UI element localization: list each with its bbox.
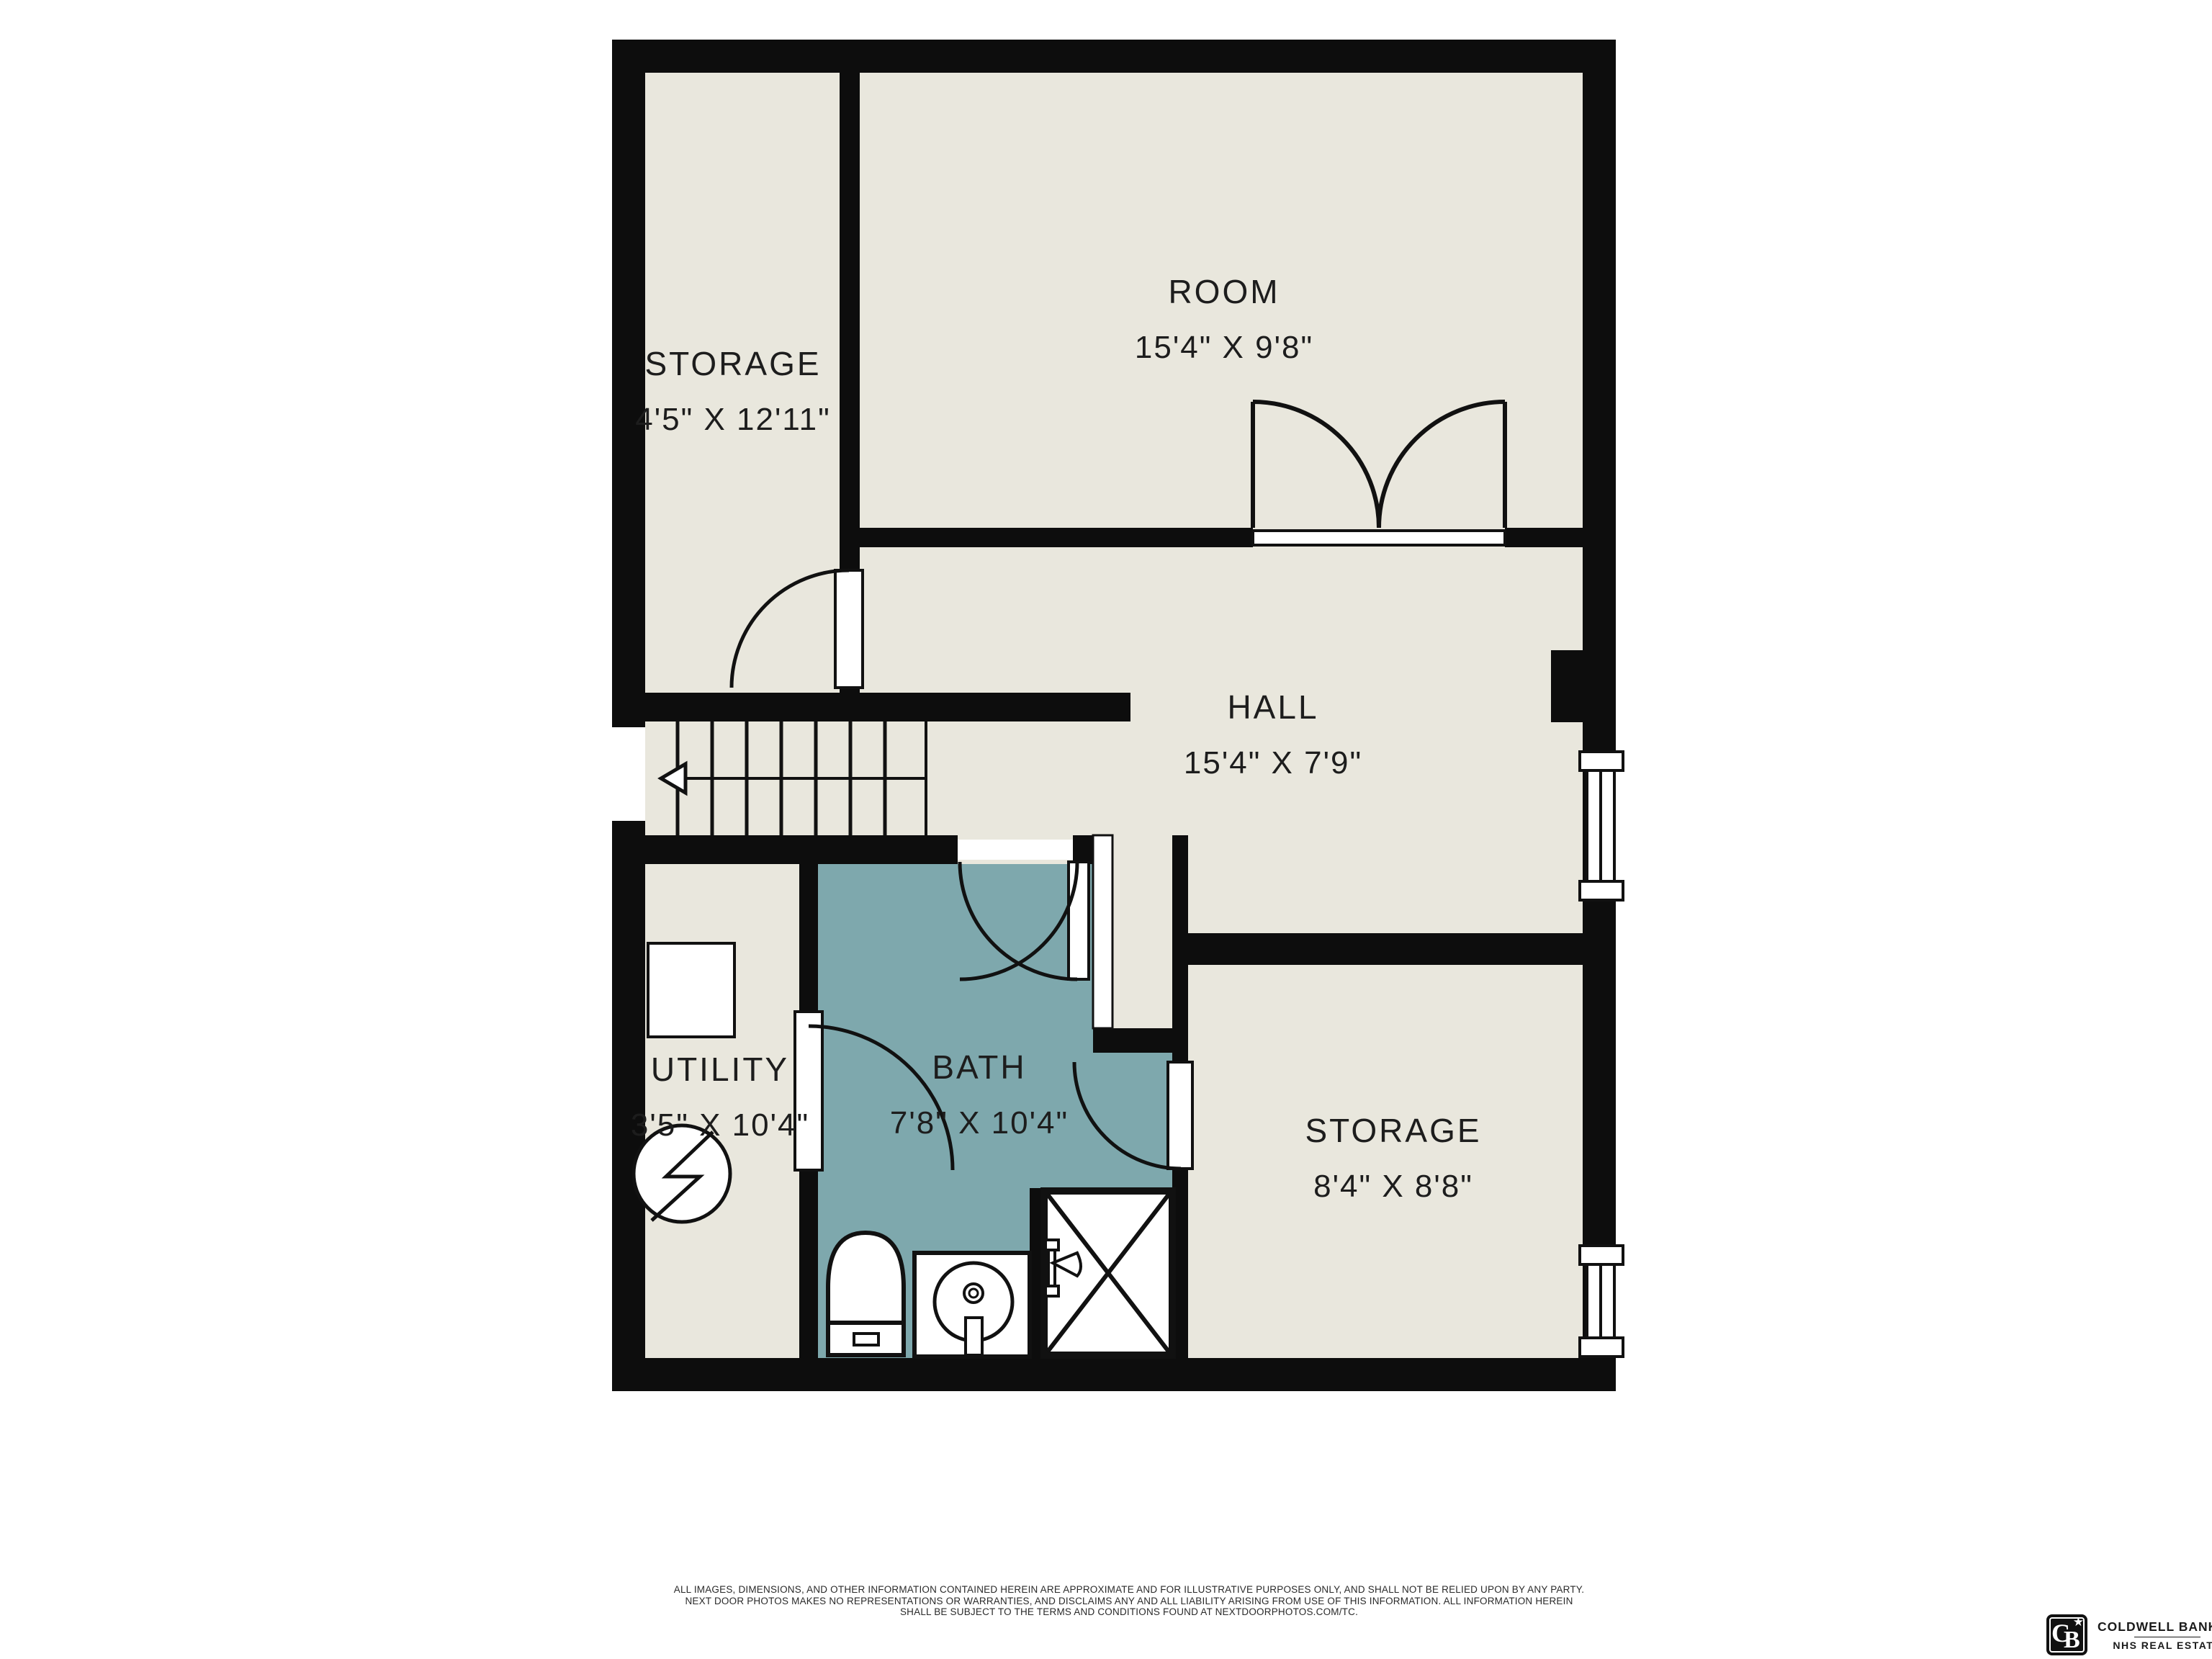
label-hall: HALL 15'4" X 7'9" [1184, 688, 1362, 781]
storage-window [1580, 1246, 1623, 1357]
room-name: HALL [1184, 688, 1362, 727]
shower-icon [1044, 1191, 1172, 1355]
label-room: ROOM 15'4" X 9'8" [1135, 272, 1313, 366]
label-bath: BATH 7'8" X 10'4" [890, 1048, 1069, 1141]
brand-divider [2134, 1637, 2200, 1637]
disclaimer-line-1: ALL IMAGES, DIMENSIONS, AND OTHER INFORM… [589, 1584, 1669, 1596]
room-name: STORAGE [1305, 1111, 1481, 1150]
brand-text: COLDWELL BANKER NHS REAL ESTATE [2098, 1619, 2212, 1651]
cb-letter-b: B [2064, 1627, 2080, 1654]
room-dims: 8'4" X 8'8" [1305, 1169, 1481, 1205]
nook-opening-strip [1093, 835, 1112, 1028]
room-dims: 4'5" X 12'11" [635, 402, 830, 438]
disclaimer-line-3: SHALL BE SUBJECT TO THE TERMS AND CONDIT… [589, 1606, 1669, 1618]
star-icon: ★ [2073, 1615, 2084, 1629]
room-dims: 15'4" X 9'8" [1135, 330, 1313, 366]
disclaimer-line-2: NEXT DOOR PHOTOS MAKES NO REPRESENTATION… [589, 1596, 1669, 1607]
appliance-square [648, 943, 734, 1037]
room-name: STORAGE [635, 344, 830, 383]
room-dims: 3'5" X 10'4" [631, 1107, 809, 1143]
room-dims: 15'4" X 7'9" [1184, 745, 1362, 781]
room-name: UTILITY [631, 1050, 809, 1089]
brand-subname: NHS REAL ESTATE [2098, 1640, 2212, 1651]
sink-icon [914, 1253, 1030, 1357]
cb-monogram-icon: C B ★ [2046, 1614, 2087, 1655]
room-name: ROOM [1135, 272, 1313, 311]
toilet-icon [828, 1233, 904, 1355]
room-dims: 7'8" X 10'4" [890, 1105, 1069, 1141]
label-utility: UTILITY 3'5" X 10'4" [631, 1050, 809, 1143]
brand-name: COLDWELL BANKER [2098, 1619, 2212, 1635]
room-name: BATH [890, 1048, 1069, 1087]
label-storage-top-left: STORAGE 4'5" X 12'11" [635, 344, 830, 438]
floor-plan-drawing [0, 0, 2212, 1659]
hall-window [1580, 752, 1623, 900]
stair-wall-opening [612, 727, 645, 821]
disclaimer-text: ALL IMAGES, DIMENSIONS, AND OTHER INFORM… [589, 1584, 1669, 1618]
label-storage-bottom-right: STORAGE 8'4" X 8'8" [1305, 1111, 1481, 1205]
coldwell-banker-logo: C B ★ COLDWELL BANKER NHS REAL ESTATE [2046, 1614, 2212, 1655]
